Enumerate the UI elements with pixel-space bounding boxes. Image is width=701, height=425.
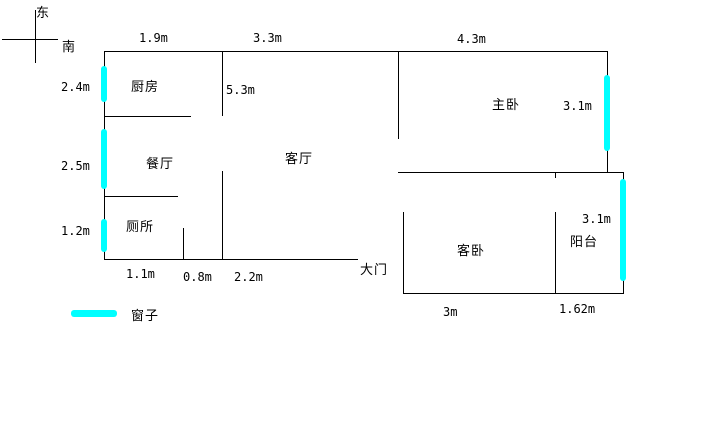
dim-left-2: 2.5m [61, 160, 90, 172]
dim-bottom-2: 0.8m [183, 271, 212, 283]
dim-guest-width: 3m [443, 306, 457, 318]
wall-toilet-right [183, 228, 184, 260]
dim-top-1: 1.9m [139, 32, 168, 44]
compass-horizontal-line [2, 39, 58, 40]
wall-middle-horizontal [398, 172, 624, 173]
room-label-living: 客厅 [285, 153, 313, 166]
wall-guest-balcony [555, 212, 556, 294]
compass-south-label: 南 [62, 41, 76, 54]
window-balcony [620, 179, 626, 281]
wall-interior-upper [222, 51, 223, 116]
wall-kitchen-dining [104, 116, 191, 117]
room-label-dining: 餐厅 [146, 158, 174, 171]
room-label-kitchen: 厨房 [131, 81, 159, 94]
wall-dining-toilet [104, 196, 178, 197]
wall-top [104, 51, 608, 52]
dim-bottom-3: 2.2m [234, 271, 263, 283]
room-label-guest: 客卧 [457, 245, 485, 258]
dim-balcony-width: 1.62m [559, 303, 595, 315]
wall-interior-lower [222, 171, 223, 260]
dim-top-3: 4.3m [457, 33, 486, 45]
wall-master-left [398, 51, 399, 139]
legend-window-label: 窗子 [131, 310, 159, 323]
wall-guest-left [403, 212, 404, 294]
compass-east-label: 东 [36, 7, 50, 20]
room-label-master: 主卧 [492, 99, 520, 112]
window-toilet [101, 219, 107, 252]
dim-left-3: 1.2m [61, 225, 90, 237]
dim-living-depth: 5.3m [226, 84, 255, 96]
window-kitchen [101, 66, 107, 102]
dim-bottom-1: 1.1m [126, 268, 155, 280]
dim-master-window: 3.1m [563, 100, 592, 112]
room-label-balcony: 阳台 [570, 236, 598, 249]
wall-balcony-door-tick [555, 172, 556, 178]
dim-balcony-window: 3.1m [582, 213, 611, 225]
wall-bottom-living [104, 259, 358, 260]
floor-plan-canvas: 东 南 1.9m 3.3m 4.3m 2.4m 2.5m 1.2m 厨房 餐厅 … [0, 0, 701, 425]
window-master [604, 75, 610, 151]
wall-bottom-guest [403, 293, 624, 294]
legend-window-swatch [71, 310, 117, 317]
dim-top-2: 3.3m [253, 32, 282, 44]
main-door-label: 大门 [360, 264, 388, 277]
dim-left-1: 2.4m [61, 81, 90, 93]
room-label-toilet: 厕所 [126, 221, 154, 234]
window-dining [101, 129, 107, 189]
